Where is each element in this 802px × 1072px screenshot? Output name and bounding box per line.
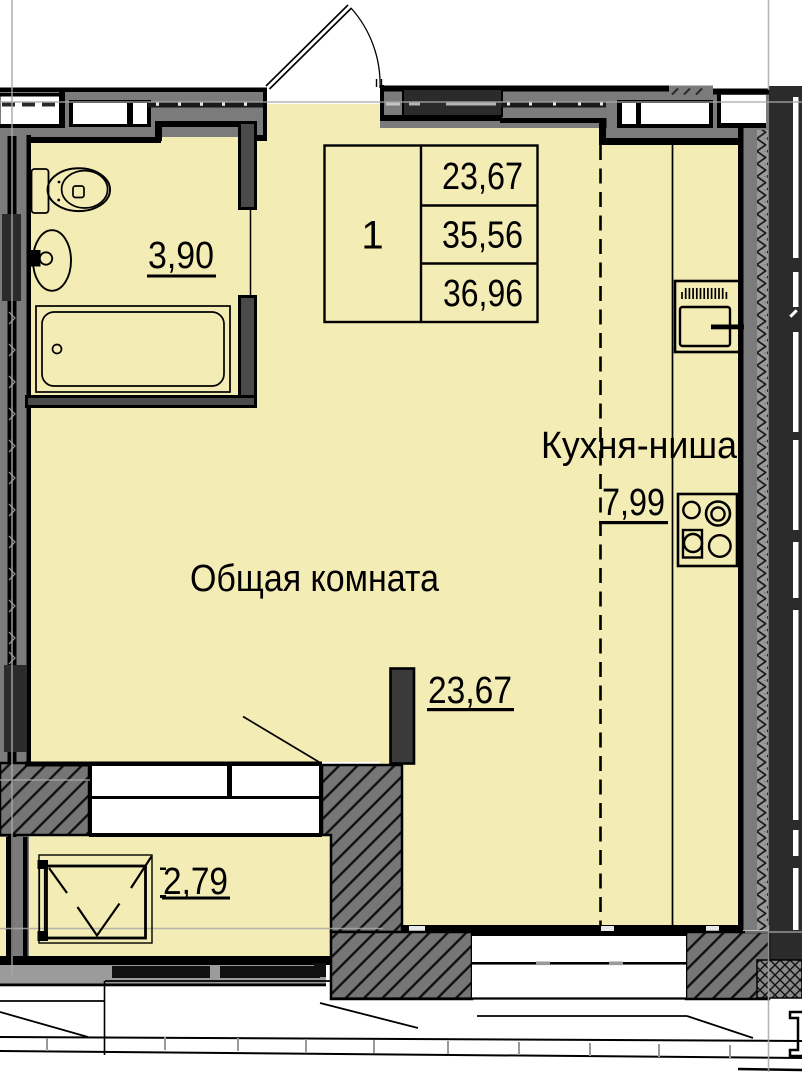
svg-text:35,56: 35,56 bbox=[442, 215, 523, 257]
svg-text:36,96: 36,96 bbox=[443, 273, 523, 315]
svg-text:1: 1 bbox=[361, 214, 383, 258]
svg-text:7,99: 7,99 bbox=[602, 482, 665, 524]
svg-text:Кухня-ниша: Кухня-ниша bbox=[541, 425, 738, 467]
svg-text:3,90: 3,90 bbox=[148, 235, 214, 277]
svg-text:23,67: 23,67 bbox=[428, 670, 512, 712]
svg-text:23,67: 23,67 bbox=[442, 156, 523, 198]
svg-text:Общая комната: Общая комната bbox=[190, 558, 440, 600]
